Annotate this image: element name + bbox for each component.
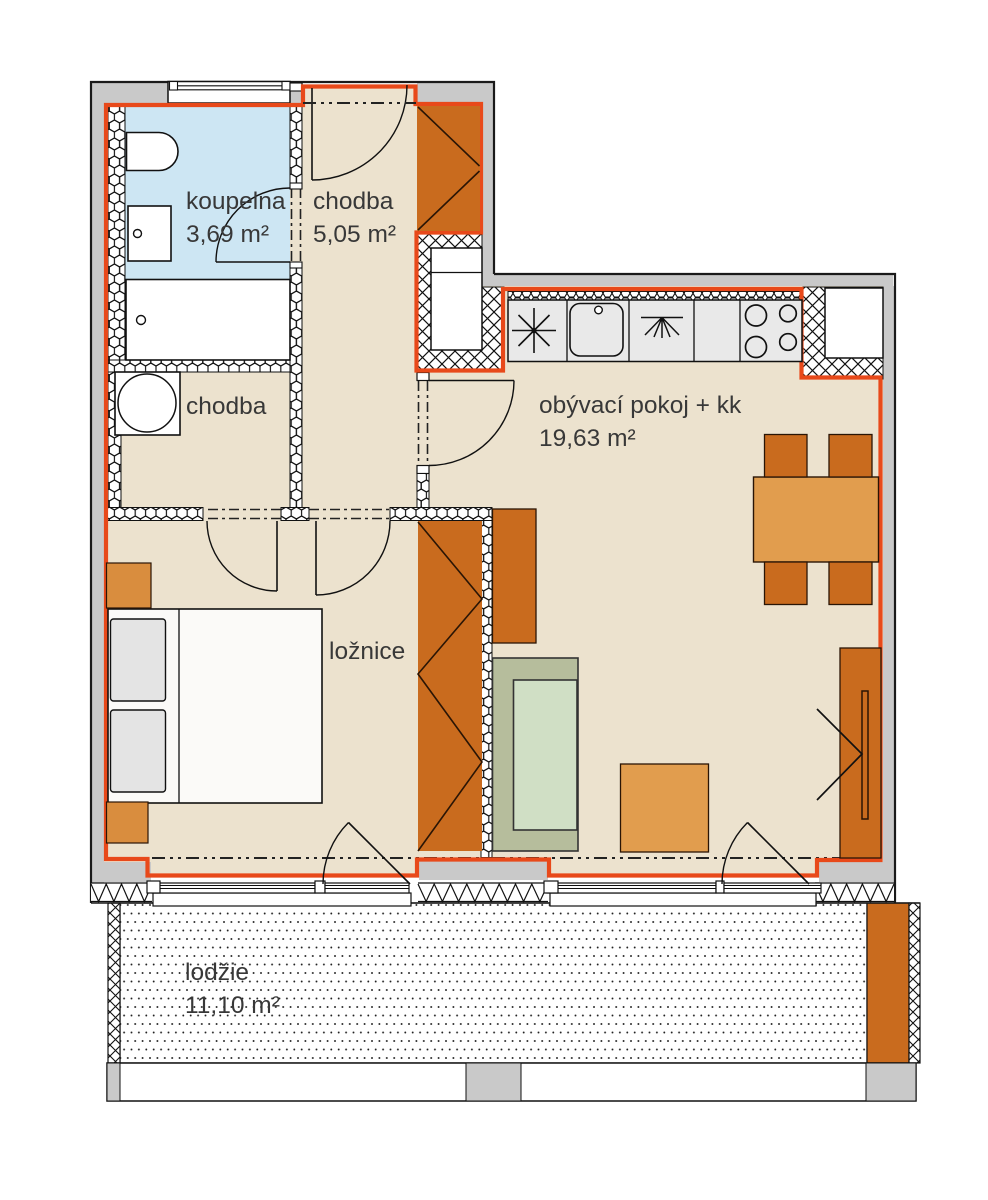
svg-text:11,10 m²: 11,10 m² (185, 992, 280, 1019)
svg-text:obývací pokoj + kk: obývací pokoj + kk (539, 392, 742, 419)
svg-text:19,63 m²: 19,63 m² (539, 425, 636, 452)
svg-text:lodžie: lodžie (185, 959, 249, 986)
svg-text:koupelna: koupelna (186, 188, 286, 215)
svg-text:chodba: chodba (313, 188, 394, 215)
svg-text:3,69 m²: 3,69 m² (186, 221, 269, 248)
svg-text:chodba: chodba (186, 393, 267, 420)
svg-text:5,05 m²: 5,05 m² (313, 221, 396, 248)
svg-text:ložnice: ložnice (329, 638, 405, 665)
